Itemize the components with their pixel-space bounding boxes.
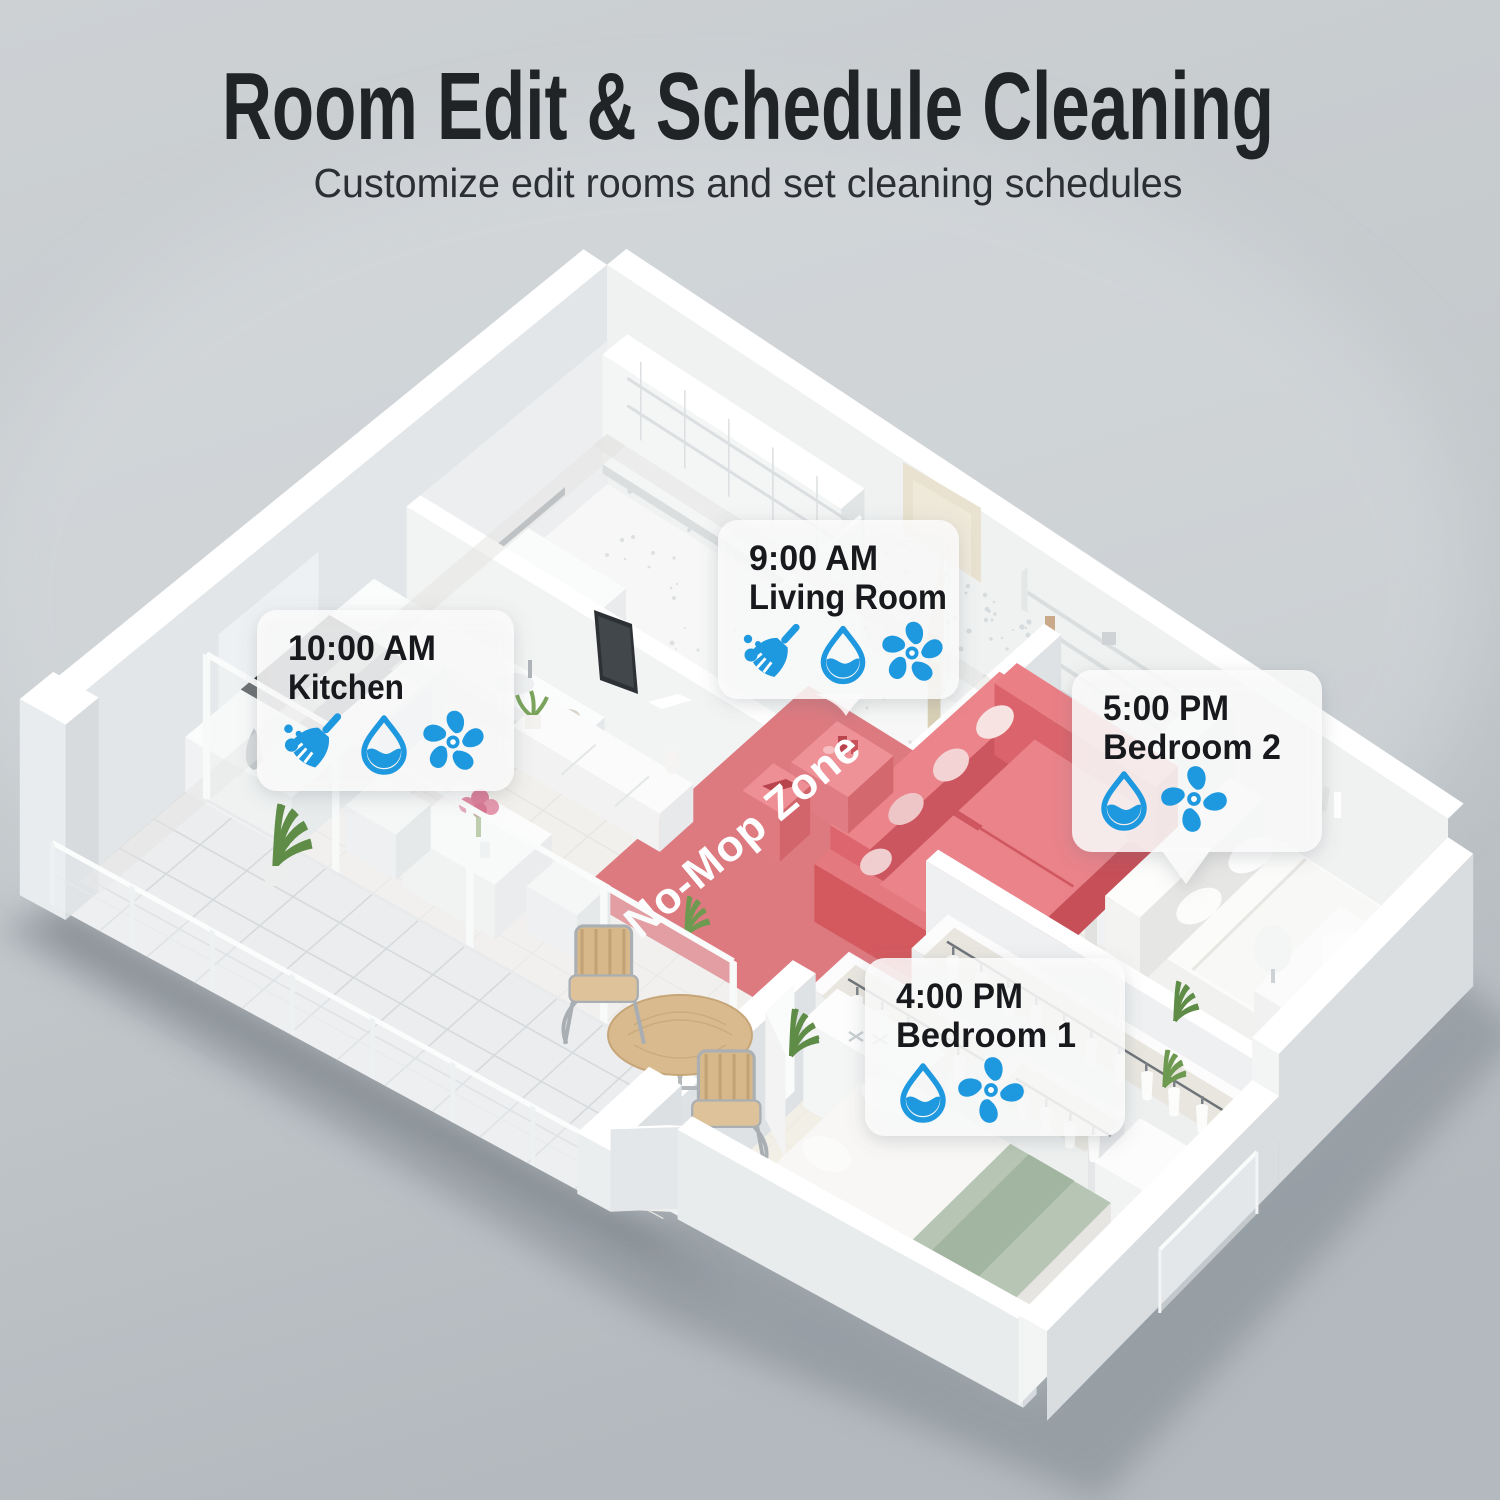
svg-text:Room Edit & Schedule Cleaning: Room Edit & Schedule Cleaning <box>222 53 1274 160</box>
svg-text:10:00 AM: 10:00 AM <box>288 629 436 668</box>
svg-text:Kitchen: Kitchen <box>288 668 404 707</box>
svg-text:Bedroom 2: Bedroom 2 <box>1103 728 1281 767</box>
svg-text:9:00 AM: 9:00 AM <box>749 539 878 578</box>
svg-text:Customize edit rooms and set c: Customize edit rooms and set cleaning sc… <box>314 160 1183 206</box>
svg-text:5:00 PM: 5:00 PM <box>1103 689 1229 728</box>
svg-text:Bedroom 1: Bedroom 1 <box>896 1016 1076 1055</box>
svg-text:4:00 PM: 4:00 PM <box>896 977 1023 1016</box>
svg-text:Living Room: Living Room <box>749 578 947 617</box>
